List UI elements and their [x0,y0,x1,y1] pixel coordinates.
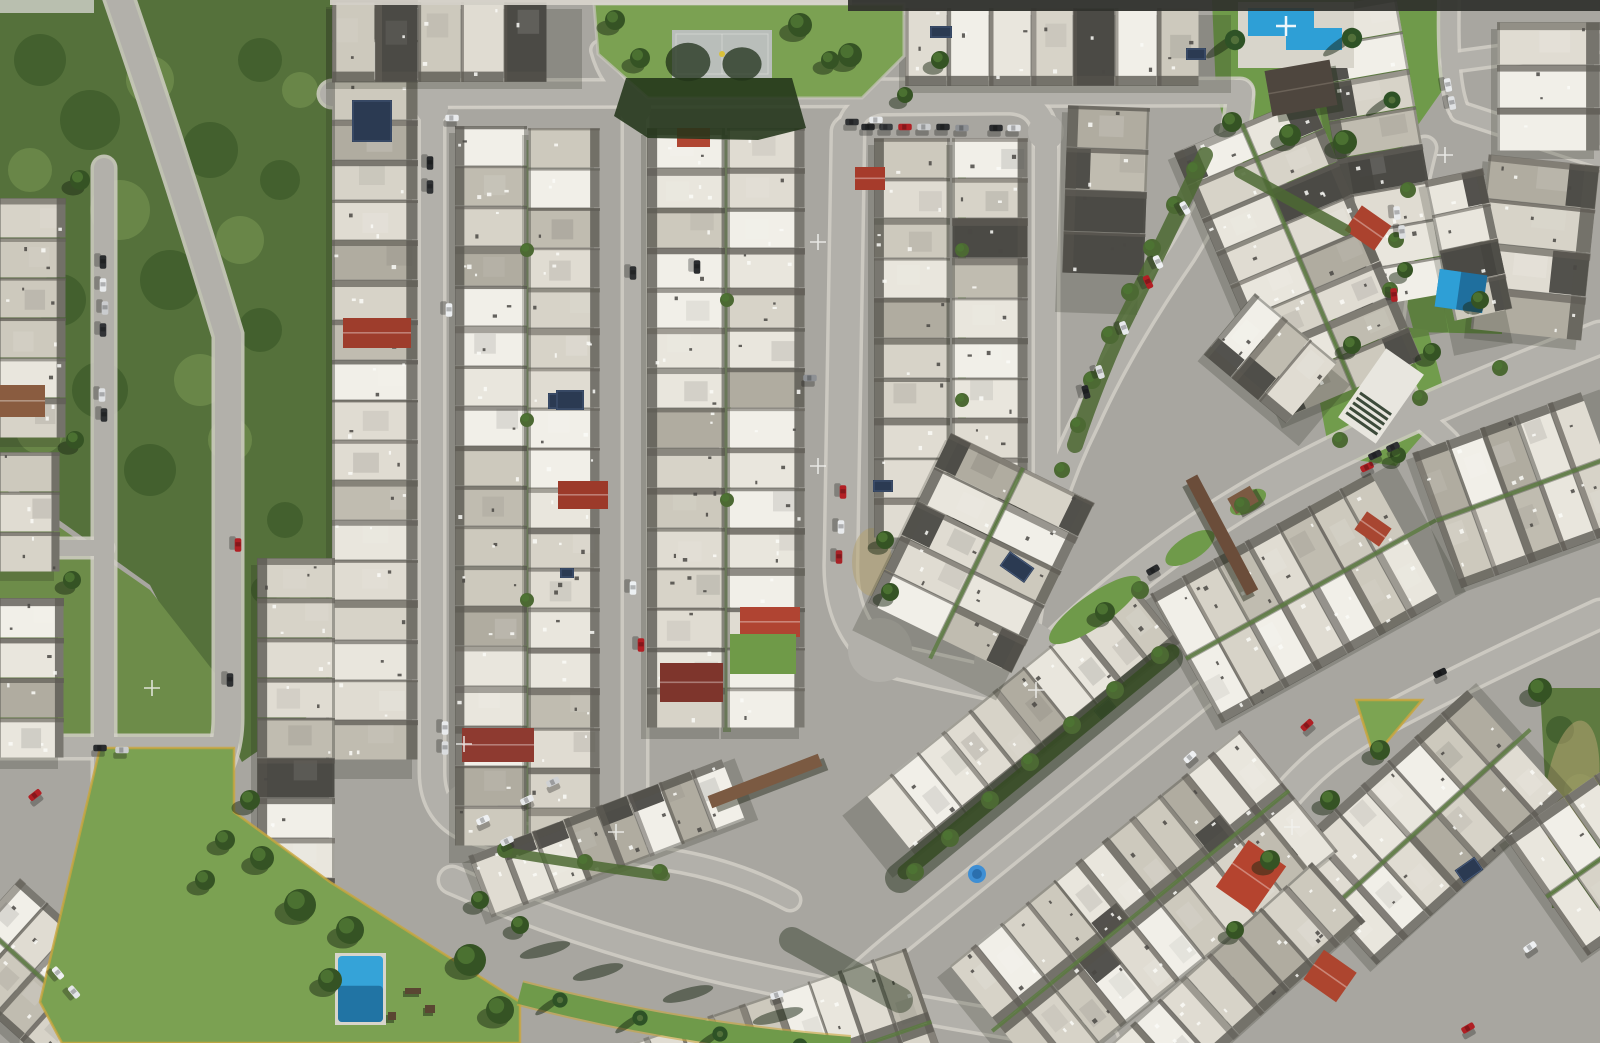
red-roof [660,663,723,702]
car [688,258,700,274]
car [421,154,433,170]
aerial-photo-canvas [0,0,1600,1043]
car [624,264,636,280]
house-row-c4 [647,128,725,728]
car [1005,125,1021,137]
image-edge-strip [848,0,1600,11]
solar-panel [930,26,952,38]
car [915,124,931,136]
car [1387,204,1400,220]
house-row-tr-corner [1497,22,1600,151]
car [867,117,883,129]
car [94,276,106,292]
solar-panel [352,100,392,142]
car [421,178,433,194]
car [91,745,107,757]
car [801,375,817,387]
car [436,739,448,755]
green-pocket-lawn [730,634,796,674]
street-tr-v [1449,0,1458,108]
red-roof [343,318,411,348]
red-roof [462,728,534,762]
car [830,548,842,564]
car [229,536,241,552]
solar-panel [560,568,574,578]
house-row-top-row-west [332,2,547,82]
car [843,119,859,131]
house-row-top-row-east [905,8,1199,86]
car [113,747,129,759]
car [834,483,846,499]
car [94,253,106,269]
car [896,124,912,136]
car [436,719,448,735]
play-equipment [425,1005,435,1013]
red-roof [0,385,45,417]
solar-panel [1186,48,1206,60]
car [987,125,1003,137]
car [96,299,108,315]
play-equipment [405,988,421,994]
red-roof [740,607,800,637]
red-roof [558,481,608,509]
car [624,579,636,595]
red-roof [855,167,885,190]
car [934,124,950,136]
car [443,115,459,127]
image-edge-strip [330,0,852,5]
tree-canopy-shadow [614,78,806,140]
aerial-photo: Aerial drone view of a dense suburban ho… [0,0,1600,1043]
play-equipment [388,1012,396,1020]
solar-panel [873,480,893,492]
car [832,518,844,534]
car [94,321,106,337]
solar-panel [556,390,584,410]
car [95,406,107,422]
car [632,636,644,652]
car [93,386,105,402]
car [440,301,452,317]
car [1392,223,1405,239]
car [953,125,969,137]
image-edge-strip [0,0,94,13]
house-row-fl2 [0,452,60,572]
car [1384,286,1397,302]
car [221,671,233,687]
